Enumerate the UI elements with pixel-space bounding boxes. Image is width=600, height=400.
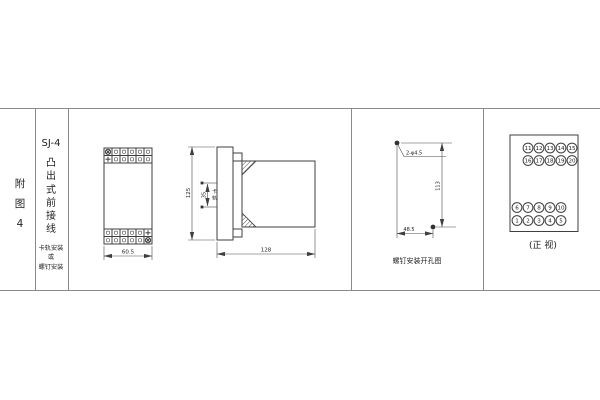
top-latch xyxy=(233,153,242,161)
drawing-sheet: 附 图 4 SJ-4 凸 出 式 前 接 线 卡轨安装 或 螺钉安装 xyxy=(0,0,600,400)
terminal-number: 7 xyxy=(526,206,530,212)
rail-label-char: 轨 xyxy=(212,195,217,202)
dimension-hole-width: 48.5 xyxy=(397,227,433,234)
rail-dim-label: 35 xyxy=(202,192,208,198)
rail-mark xyxy=(201,206,204,209)
title-column: SJ-4 凸 出 式 前 接 线 卡轨安装 或 螺钉安装 xyxy=(39,138,64,271)
plus-icon xyxy=(106,157,111,162)
terminal-circles: 11 12 13 14 15 16 17 18 19 20 6 7 8 9 10… xyxy=(512,143,577,225)
height-dim-label: 125 xyxy=(186,187,192,198)
drill-template-view: 2-φ4.5 113 48.5 螺钉安装开孔图 xyxy=(393,141,457,265)
terminal-number: 2 xyxy=(526,219,530,225)
type-char: 线 xyxy=(46,222,56,235)
type-char: 前 xyxy=(46,196,56,209)
dimension-depth: 128 xyxy=(217,229,315,258)
bottom-terminal-block xyxy=(104,229,152,244)
din-rail-detail: 35 卡 轨 xyxy=(201,182,217,209)
terminal-front-view: 11 12 13 14 15 16 17 18 19 20 6 7 8 9 10… xyxy=(510,135,578,251)
screw-head-icon xyxy=(105,149,110,154)
type-char: 凸 xyxy=(46,157,56,169)
hole-callout: 2-φ4.5 xyxy=(398,145,446,157)
hole-callout-label: 2-φ4.5 xyxy=(406,151,422,157)
drill-hole-bottom xyxy=(431,225,436,230)
depth-dim-label: 128 xyxy=(261,248,272,254)
type-char: 出 xyxy=(46,169,56,182)
model-label: SJ-4 xyxy=(42,138,61,149)
bottom-clamp-wedge xyxy=(242,213,256,227)
mount-note-line: 卡轨安装 xyxy=(39,244,64,252)
type-char: 式 xyxy=(46,183,56,196)
figure-char: 附 xyxy=(15,177,26,190)
top-clamp-wedge xyxy=(242,161,256,175)
front-plate-outline xyxy=(217,147,233,240)
figure-number-column: 附 图 4 xyxy=(15,177,26,230)
terminal-number: 11 xyxy=(524,146,532,152)
dimension-width: 60.5 xyxy=(104,246,152,260)
drawing-canvas: 附 图 4 SJ-4 凸 出 式 前 接 线 卡轨安装 或 螺钉安装 xyxy=(0,0,600,400)
terminal-number: 13 xyxy=(546,146,554,152)
side-view: 125 35 卡 轨 128 xyxy=(186,147,315,258)
type-char: 接 xyxy=(46,209,56,222)
terminal-number: 9 xyxy=(548,206,552,212)
terminal-number: 3 xyxy=(537,219,541,225)
terminal-number: 20 xyxy=(568,159,576,165)
terminal-number: 14 xyxy=(557,146,565,152)
top-terminal-block xyxy=(104,148,152,163)
terminal-number: 6 xyxy=(515,206,519,212)
terminal-number: 12 xyxy=(535,146,542,152)
mount-note-line: 螺钉安装 xyxy=(39,263,64,271)
screw-head-icon xyxy=(145,238,150,243)
drill-view-caption: 螺钉安装开孔图 xyxy=(393,256,442,265)
plus-icon xyxy=(146,230,151,235)
case-outline xyxy=(242,161,315,227)
terminal-number: 15 xyxy=(568,146,576,152)
figure-char: 图 xyxy=(15,198,26,210)
dimension-hole-height: 113 xyxy=(436,143,443,227)
terminal-number: 1 xyxy=(515,219,519,225)
dimension-height: 125 xyxy=(186,147,215,240)
figure-char: 4 xyxy=(17,218,24,230)
terminal-number: 16 xyxy=(524,159,532,165)
terminal-number: 19 xyxy=(557,159,565,165)
mount-note-line: 或 xyxy=(48,253,54,261)
terminal-number: 10 xyxy=(557,206,565,212)
terminal-number: 18 xyxy=(546,159,554,165)
rail-mark xyxy=(201,182,204,185)
terminal-number: 8 xyxy=(537,206,541,212)
rail-label-char: 卡 xyxy=(212,188,217,195)
front-view-caption: (正 视) xyxy=(529,239,557,251)
terminal-number: 17 xyxy=(535,159,543,165)
outline-view: 60.5 xyxy=(104,148,152,260)
bottom-latch xyxy=(233,229,242,237)
terminal-number: 4 xyxy=(548,219,552,225)
drill-hole-top xyxy=(395,141,400,146)
hole-height-label: 113 xyxy=(436,181,442,191)
width-dim-label: 60.5 xyxy=(122,250,135,256)
relay-body-outline xyxy=(104,163,152,229)
terminal-number: 5 xyxy=(559,219,563,225)
hole-width-label: 48.5 xyxy=(403,227,414,233)
